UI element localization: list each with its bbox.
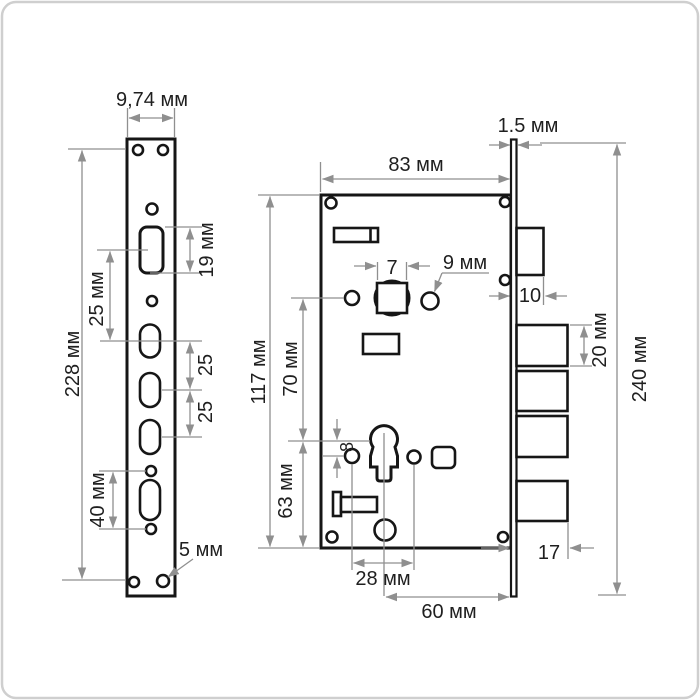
dim-label-spindle-square: 7 bbox=[386, 257, 397, 279]
lock-body-case bbox=[321, 195, 511, 548]
pin-shaft bbox=[341, 497, 377, 512]
dim-label-bolt-throw: 17 bbox=[538, 542, 560, 564]
dim-label-latch-slot-height: 19 мм bbox=[196, 222, 218, 277]
dim-label-faceplate-width: 9,74 мм bbox=[116, 89, 188, 111]
inner-window bbox=[363, 334, 399, 354]
oval-slot bbox=[140, 420, 160, 454]
dim-label-total-height: 240 мм bbox=[629, 336, 651, 402]
dim-label-keyhole-hole-spacing: 28 мм bbox=[355, 568, 410, 590]
dim-label-oval-gap-2: 25 bbox=[195, 401, 217, 423]
latch-bolt bbox=[517, 228, 544, 275]
screw-hole bbox=[147, 296, 157, 306]
dim-label-cylinder-hole: 9 мм bbox=[443, 252, 487, 274]
dim-label-keyhole-to-bottom: 63 мм bbox=[275, 463, 297, 518]
lock-body-front-view bbox=[321, 195, 511, 548]
oval-slot bbox=[140, 373, 160, 407]
mounting-hole bbox=[133, 145, 143, 155]
fixing-hole bbox=[345, 291, 359, 305]
deadbolt bbox=[517, 371, 568, 411]
mounting-hole-5mm bbox=[157, 575, 169, 587]
dim-label-plate-thickness: 1.5 мм bbox=[498, 115, 559, 137]
faceplate-edge bbox=[511, 140, 517, 597]
deadbolt bbox=[517, 416, 568, 457]
dim-label-screw-hole: 5 мм bbox=[179, 539, 223, 561]
screw-hole bbox=[146, 524, 156, 534]
dim-label-lower-hole-spacing: 40 мм bbox=[87, 472, 109, 527]
faceplate-front-view bbox=[127, 139, 175, 596]
dim-label-slot-to-oval: 25 мм bbox=[86, 271, 108, 326]
case-hole bbox=[500, 197, 510, 207]
dim-label-bolt-height: 20 мм bbox=[589, 312, 611, 367]
dim-label-oval-gap-1: 25 bbox=[195, 354, 217, 376]
dim-label-keyhole-offset: 8 bbox=[337, 442, 357, 452]
deadbolt bbox=[517, 481, 568, 521]
mounting-hole bbox=[158, 145, 168, 155]
dim-label-body-height: 117 мм bbox=[248, 340, 270, 405]
oval-slot bbox=[140, 480, 160, 520]
dim-label-body-width: 83 мм bbox=[388, 154, 443, 176]
lock-dimensions-diagram: 9,74 мм 228 мм 25 мм 19 мм 25 25 40 мм 5… bbox=[0, 0, 700, 700]
screw-hole bbox=[146, 466, 156, 476]
dim-label-backset: 60 мм bbox=[421, 601, 476, 623]
case-hole bbox=[327, 532, 338, 543]
screw-hole bbox=[147, 204, 158, 215]
bottom-hole bbox=[375, 520, 396, 541]
screenshot-canvas: 9,74 мм 228 мм 25 мм 19 мм 25 25 40 мм 5… bbox=[0, 0, 700, 700]
case-hole bbox=[498, 532, 508, 542]
dim-label-faceplate-height: 228 мм bbox=[62, 331, 84, 397]
dim-label-latch-throw: 10 bbox=[519, 285, 541, 307]
case-hole bbox=[326, 198, 337, 209]
cylinder-fixing-hole bbox=[422, 293, 439, 310]
case-hole bbox=[500, 275, 510, 285]
spindle-square-hole bbox=[377, 283, 407, 313]
fixing-hole bbox=[408, 451, 421, 464]
dim-label-spindle-to-keyhole: 70 мм bbox=[280, 341, 302, 396]
square-window bbox=[432, 447, 455, 468]
mounting-hole bbox=[129, 577, 139, 587]
deadbolt bbox=[517, 325, 568, 366]
